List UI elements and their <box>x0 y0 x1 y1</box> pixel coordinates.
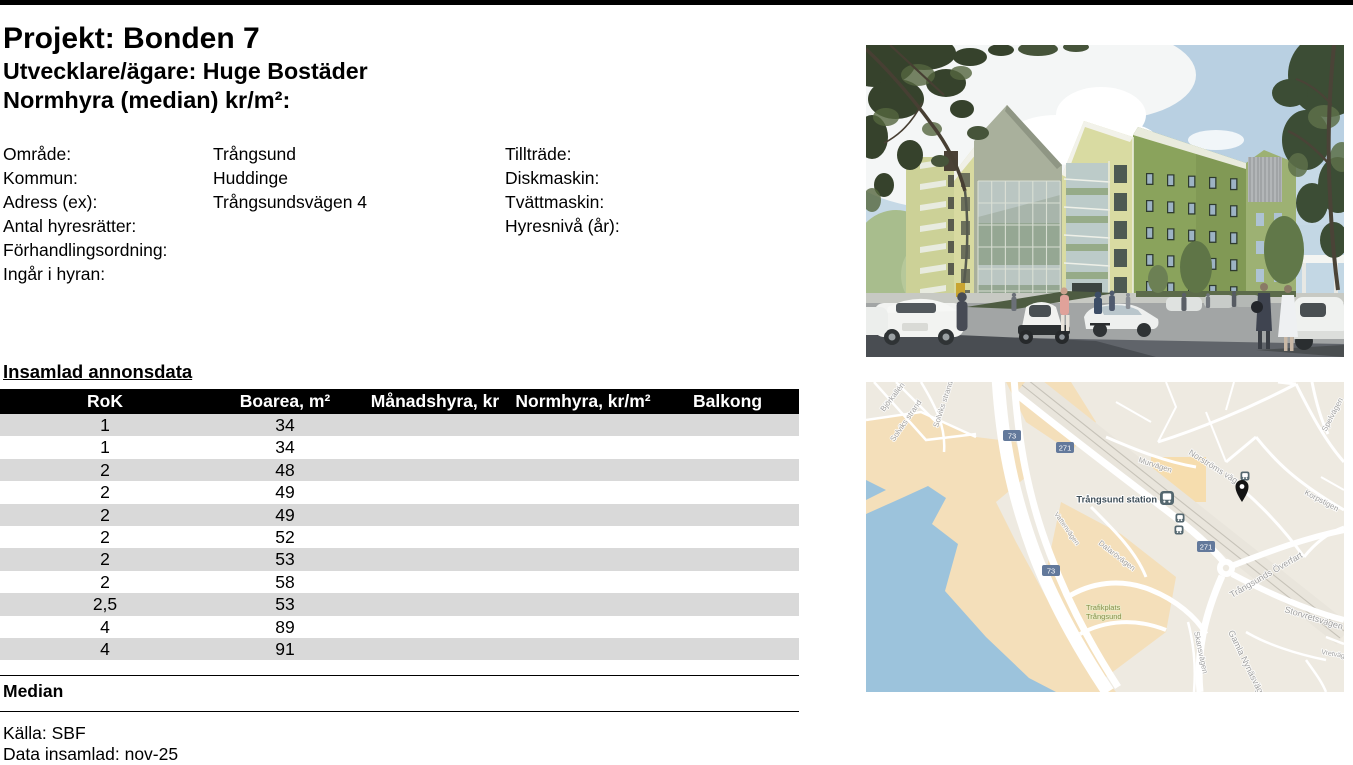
svg-text:73: 73 <box>1047 567 1055 576</box>
svg-text:Trångsund station: Trångsund station <box>1076 495 1157 505</box>
svg-text:Trafikplats: Trafikplats <box>1086 603 1121 612</box>
svg-text:271: 271 <box>1200 543 1213 552</box>
svg-text:73: 73 <box>1008 432 1016 441</box>
svg-text:Trångsund: Trångsund <box>1086 612 1122 621</box>
svg-text:271: 271 <box>1059 444 1072 453</box>
